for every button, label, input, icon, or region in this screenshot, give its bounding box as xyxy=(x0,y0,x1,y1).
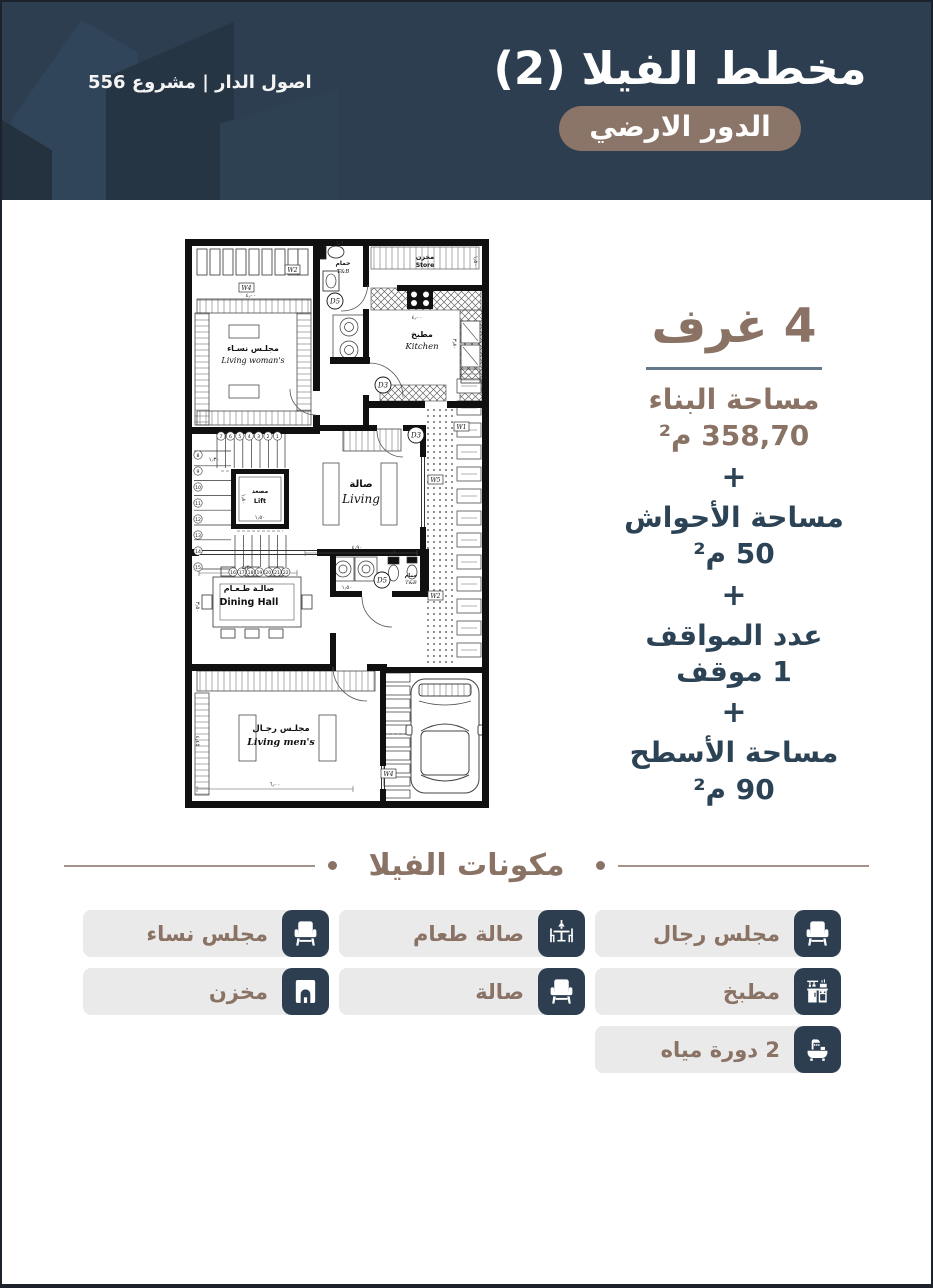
stats-divider xyxy=(646,367,822,370)
svg-text:10: 10 xyxy=(195,485,201,491)
svg-text:8: 8 xyxy=(197,453,200,459)
womans-label-ar: مجلـس نسـاء xyxy=(227,344,279,354)
svg-text:19: 19 xyxy=(256,570,262,576)
bath-mid-label-ar: حمام xyxy=(405,573,418,579)
component-chip-kitchen: مطبخ xyxy=(595,968,841,1015)
svg-text:١٫٥٠: ١٫٥٠ xyxy=(255,515,266,521)
stat-value: 1 موقف xyxy=(559,654,909,690)
mens-label-en: Living men's xyxy=(246,737,315,748)
svg-text:٤٫٠٠: ٤٫٠٠ xyxy=(412,315,423,321)
svg-text:٤٫٠٠: ٤٫٠٠ xyxy=(246,293,257,299)
svg-text:14: 14 xyxy=(195,549,201,555)
stat-value: 358,70 م² xyxy=(559,418,909,454)
svg-text:11: 11 xyxy=(195,501,201,507)
svg-text:9: 9 xyxy=(197,469,200,475)
svg-text:12: 12 xyxy=(195,517,201,523)
component-chip-mens-majlis: مجلس رجال xyxy=(595,910,841,957)
stat-courtyard-area: مساحة الأحواش 50 م² xyxy=(559,500,909,573)
heading-dot-left xyxy=(328,861,337,870)
component-chip-womens-majlis: مجلس نساء xyxy=(83,910,329,957)
window-label-w2b: W2 xyxy=(431,593,441,600)
door-label-d5a: D5 xyxy=(329,298,341,306)
store-label-ar: مخزن xyxy=(416,253,434,261)
svg-text:5: 5 xyxy=(238,434,241,440)
window-label-w5: W5 xyxy=(431,477,441,484)
hall-label-ar: صالة xyxy=(349,479,372,490)
svg-text:22: 22 xyxy=(283,570,289,576)
womans-label-en: Living woman's xyxy=(220,356,284,365)
hall-label-en: Living xyxy=(341,492,380,506)
component-label: صالة طعام xyxy=(413,910,524,957)
svg-text:١٫٨٠: ١٫٨٠ xyxy=(240,494,246,505)
svg-text:١٫٥٠: ١٫٥٠ xyxy=(342,585,353,591)
heading-line-left xyxy=(64,865,315,867)
components-grid: مجلس رجال صالة طعام مجلس نساء مطبخ صالة xyxy=(83,910,841,1073)
component-label: مطبخ xyxy=(723,968,780,1015)
stat-value: 90 م² xyxy=(559,772,909,808)
component-label: مجلس نساء xyxy=(146,910,268,957)
bath-mid-label-en: T&B xyxy=(405,580,417,586)
stat-label: مساحة الأسطح xyxy=(559,735,909,771)
floor-plan-svg: 76 54 32 1 89 1011 1213 1415 1617 1819 2… xyxy=(185,239,489,808)
components-heading: مكونات الفيلا xyxy=(2,848,931,883)
kitchen-label-en: Kitchen xyxy=(404,342,438,352)
page-title: مخطط الفيلا (2) xyxy=(475,44,885,94)
dining-icon xyxy=(538,910,585,957)
svg-text:٣٫٥٠: ٣٫٥٠ xyxy=(194,602,200,613)
svg-text:16: 16 xyxy=(230,570,236,576)
header-banner: اصول الدار | مشروع 556 مخطط الفيلا (2) ا… xyxy=(2,2,931,200)
floor-badge: الدور الارضي xyxy=(559,106,801,151)
dining-label-en: Dining Hall xyxy=(220,597,279,608)
svg-text:١٫٣٠: ١٫٣٠ xyxy=(209,457,220,463)
svg-text:2: 2 xyxy=(267,434,270,440)
dining-label-ar: صالـة طـعـام xyxy=(224,584,275,593)
window-label-w4a: W4 xyxy=(242,285,252,292)
bath-icon xyxy=(794,1026,841,1073)
svg-text:٦٫٠٠: ٦٫٠٠ xyxy=(270,782,281,788)
svg-text:20: 20 xyxy=(265,570,271,576)
svg-text:٤٫٣٠: ٤٫٣٠ xyxy=(242,565,253,571)
component-label: 2 دورة مياه xyxy=(661,1026,780,1073)
svg-text:٤٫٩٠: ٤٫٩٠ xyxy=(352,545,363,551)
poster-page: اصول الدار | مشروع 556 مخطط الفيلا (2) ا… xyxy=(0,0,933,1288)
components-title: مكونات الفيلا xyxy=(350,848,582,883)
stat-roof-area: مساحة الأسطح 90 م² xyxy=(559,735,909,808)
svg-text:15: 15 xyxy=(195,565,201,571)
component-chip-storage: مخزن xyxy=(83,968,329,1015)
door-label-d3a: D3 xyxy=(377,382,389,390)
window-label-w1: W1 xyxy=(457,424,467,431)
svg-text:٠٫٨: ٠٫٨ xyxy=(388,550,396,556)
chair-icon xyxy=(794,910,841,957)
component-chip-bathrooms: 2 دورة مياه xyxy=(595,1026,841,1073)
building-shape-dark xyxy=(106,2,234,200)
svg-text:١٫٦٠: ١٫٦٠ xyxy=(336,241,347,247)
svg-text:٤٫٤٥: ٤٫٤٥ xyxy=(194,736,200,747)
svg-text:3: 3 xyxy=(257,434,260,440)
rooms-count: 4 غرف xyxy=(559,300,909,354)
plus-sign: + xyxy=(559,460,909,495)
component-label: مخزن xyxy=(209,968,268,1015)
laundry-fixtures xyxy=(333,315,365,361)
storage-icon xyxy=(282,968,329,1015)
svg-text:1: 1 xyxy=(276,434,279,440)
window-label-w4b: W4 xyxy=(384,771,394,778)
stat-label: عدد المواقف xyxy=(559,618,909,654)
heading-dot-right xyxy=(596,861,605,870)
component-chip-hall: صالة xyxy=(339,968,585,1015)
svg-text:21: 21 xyxy=(274,570,280,576)
stat-label: مساحة الأحواش xyxy=(559,500,909,536)
heading-line-right xyxy=(618,865,869,867)
svg-text:7: 7 xyxy=(220,434,223,440)
plus-sign: + xyxy=(559,695,909,730)
stats-column: 4 غرف مساحة البناء 358,70 م² + مساحة الأ… xyxy=(559,300,909,808)
svg-text:4: 4 xyxy=(248,434,251,440)
plus-sign: + xyxy=(559,578,909,613)
kitchen-icon xyxy=(794,968,841,1015)
floor-plan: 76 54 32 1 89 1011 1213 1415 1617 1819 2… xyxy=(185,239,489,808)
lift-label-en: Lift xyxy=(254,497,266,505)
component-label: مجلس رجال xyxy=(653,910,780,957)
component-chip-dining-hall: صالة طعام xyxy=(339,910,585,957)
chair-icon xyxy=(282,910,329,957)
title-block: مخطط الفيلا (2) الدور الارضي xyxy=(475,44,885,151)
stat-label: مساحة البناء xyxy=(559,382,909,418)
svg-text:6: 6 xyxy=(229,434,232,440)
stat-value: 50 م² xyxy=(559,536,909,572)
svg-text:٣٫٨٠: ٣٫٨٠ xyxy=(451,339,457,350)
bath-top-label-ar: حمام xyxy=(336,260,351,267)
bath-top-label-en: T&B xyxy=(337,269,350,275)
door-label-d5b: D5 xyxy=(376,577,388,585)
stat-parking-count: عدد المواقف 1 موقف xyxy=(559,618,909,691)
brand-text: اصول الدار | مشروع 556 xyxy=(88,72,312,93)
door-label-d3b: D3 xyxy=(410,432,422,440)
stat-building-area: مساحة البناء 358,70 م² xyxy=(559,382,909,455)
kitchen-label-ar: مطبخ xyxy=(411,330,433,339)
car-top-view xyxy=(406,679,484,793)
component-label: صالة xyxy=(475,968,524,1015)
store-label-en: Store xyxy=(416,262,434,269)
chair-icon xyxy=(538,968,585,1015)
svg-text:١٫٥٠: ١٫٥٠ xyxy=(472,256,478,267)
window-label-w2a: W2 xyxy=(288,267,298,274)
building-shape-mid xyxy=(220,88,338,200)
lift-label-ar: مصعد xyxy=(252,488,269,495)
svg-text:13: 13 xyxy=(195,533,201,539)
mens-label-ar: مجلـس رجـال xyxy=(252,724,309,734)
